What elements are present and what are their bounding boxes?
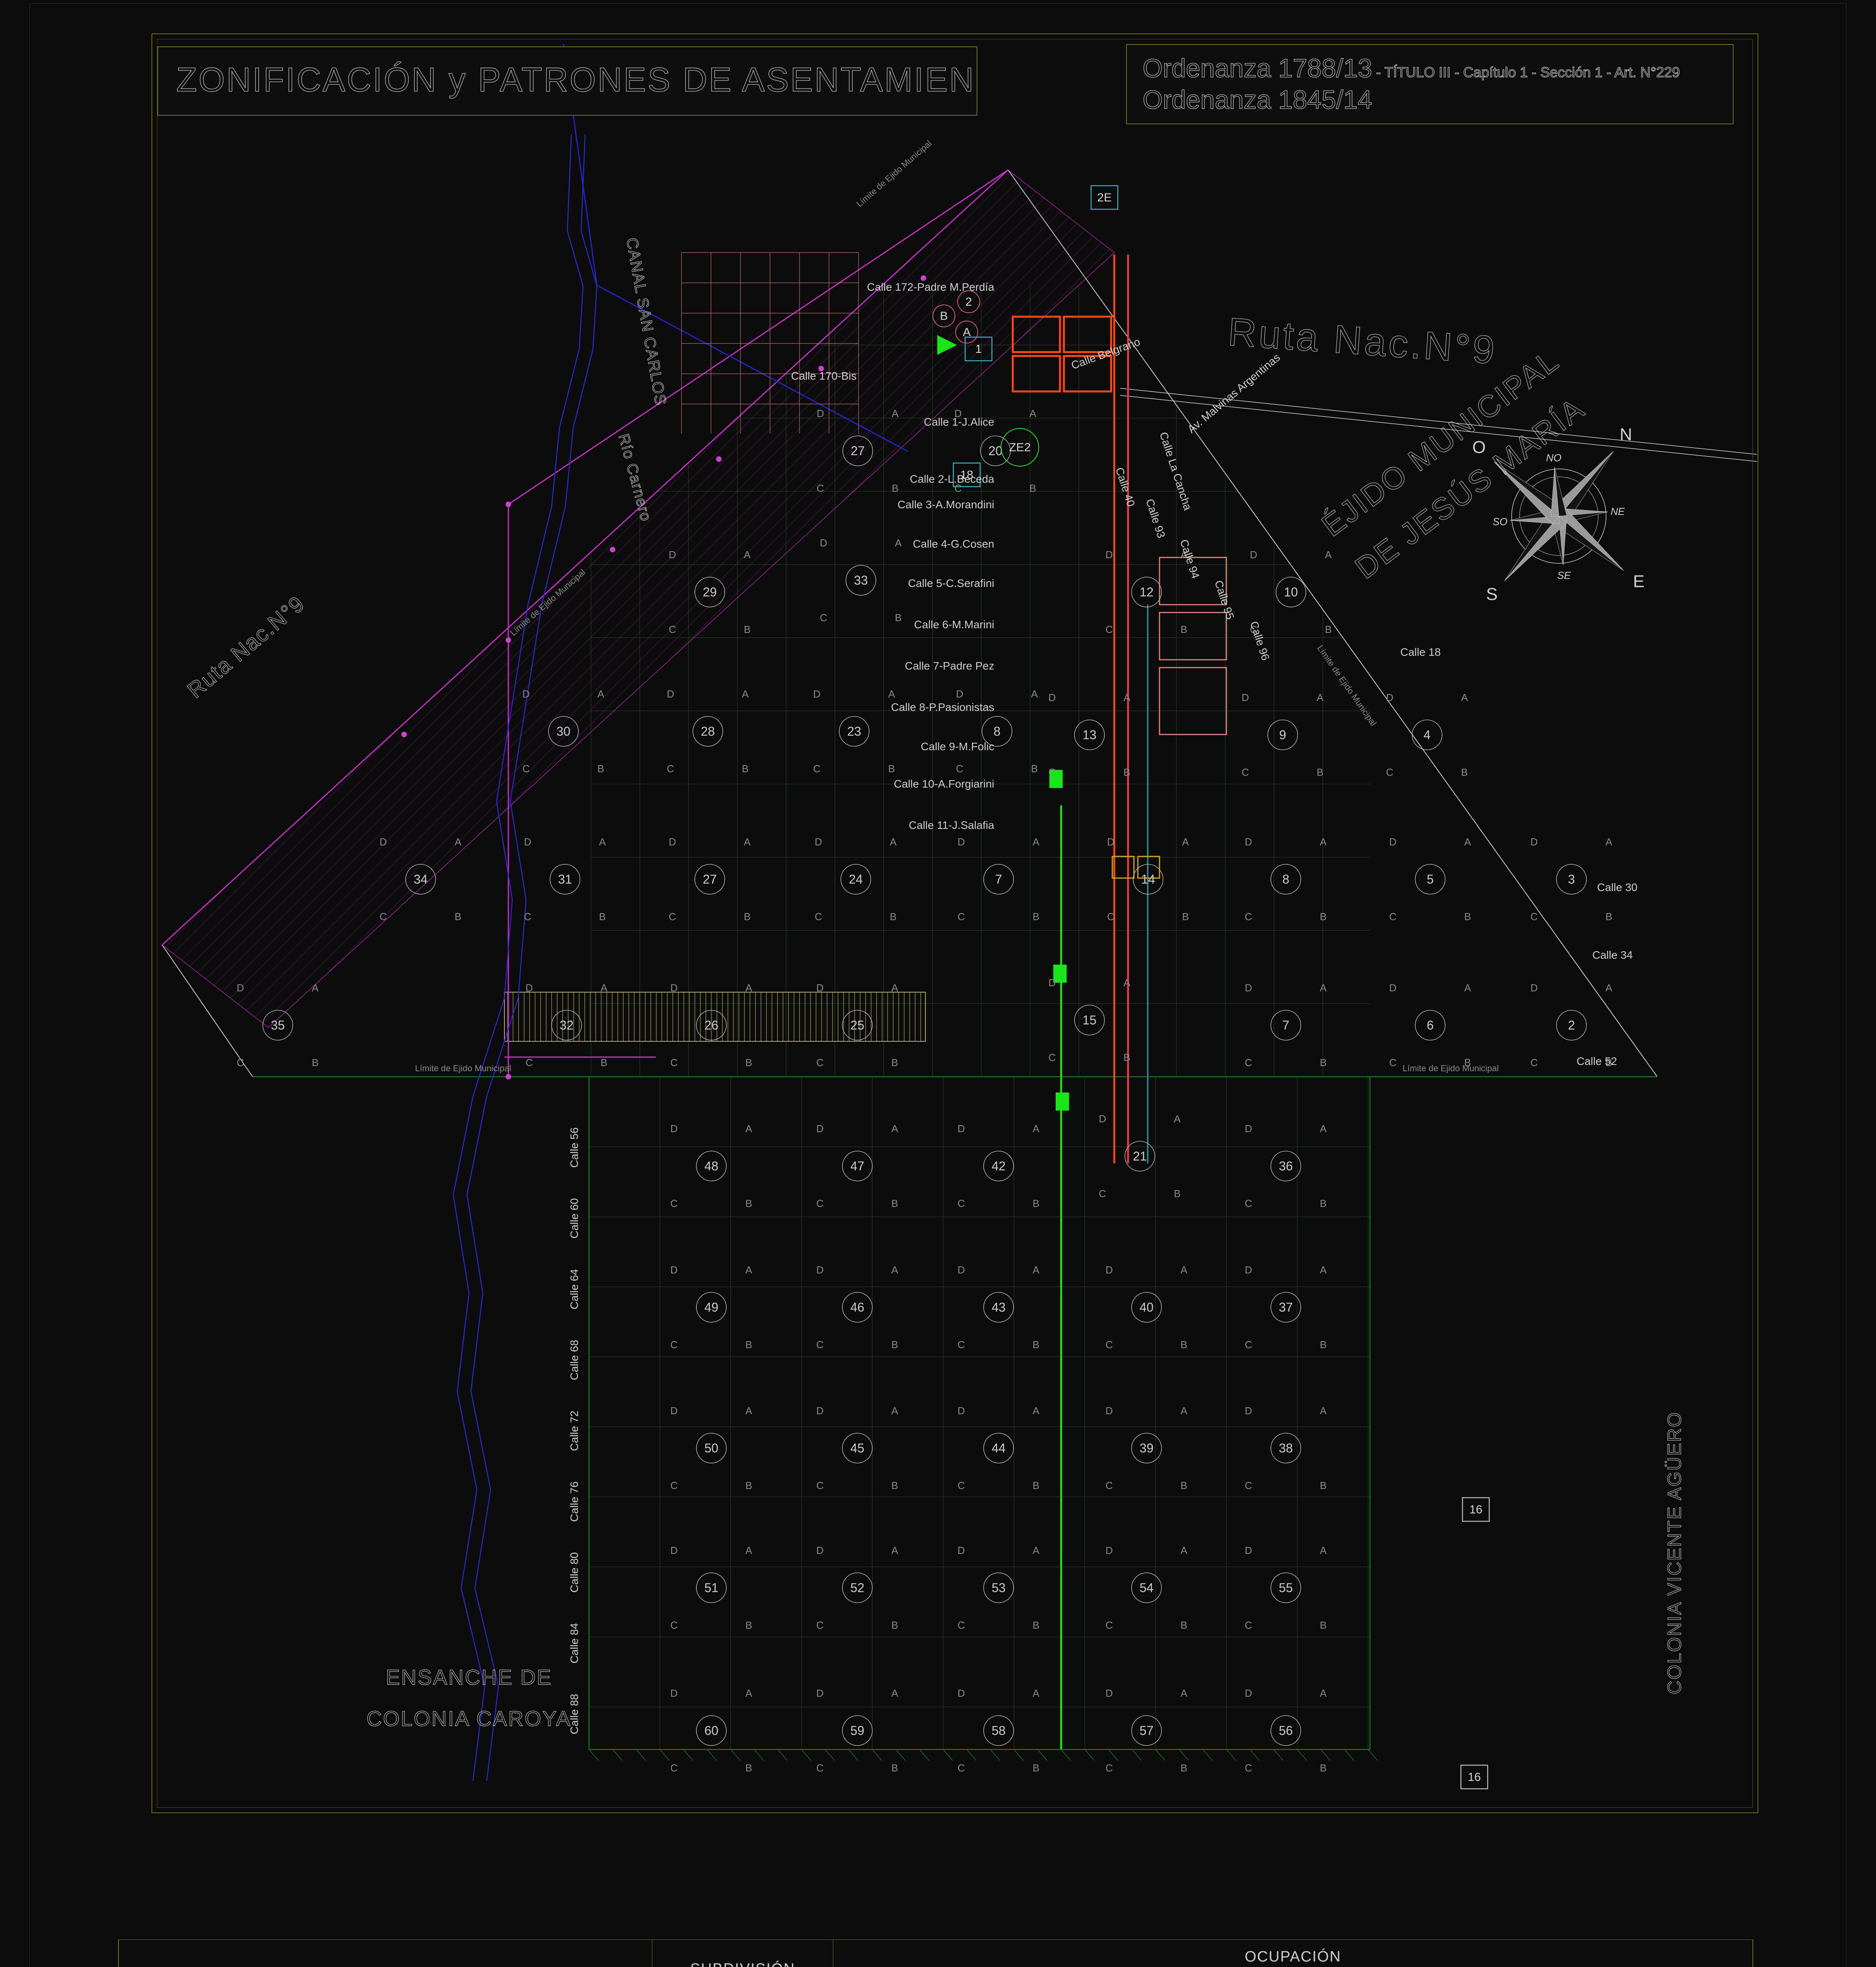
block-letter: A: [597, 688, 604, 700]
block-letter: D: [813, 688, 821, 700]
block-letter: C: [669, 911, 676, 923]
tick: [683, 1749, 693, 1760]
block-letter: C: [667, 763, 674, 775]
marker-label: 16: [1468, 1771, 1481, 1784]
block-letter: A: [742, 688, 749, 700]
block-letter: B: [745, 1480, 752, 1491]
tick: [1274, 1749, 1283, 1760]
section-number: 21: [1133, 1149, 1147, 1163]
section-number: 48: [704, 1159, 718, 1173]
block-letter: A: [891, 1123, 898, 1135]
section-number: 32: [559, 1018, 574, 1032]
street-label: Calle 7-Padre Pez: [905, 660, 994, 672]
block-letter: D: [670, 1264, 678, 1276]
street-label: Calle 76: [568, 1482, 580, 1522]
block-letter: D: [670, 1123, 678, 1135]
limit-label: Límite de Ejido Municipal: [1403, 1063, 1499, 1073]
tick: [920, 1749, 929, 1760]
block-letter: D: [958, 1264, 965, 1276]
title-block: ZONIFICACIÓN y PATRONES DE ASENTAMIENTO: [157, 46, 977, 116]
road-node: [506, 1074, 511, 1079]
street-label: Calle 3-A.Morandini: [897, 498, 994, 511]
section-number: 29: [703, 585, 717, 599]
section-number: 8: [993, 724, 1001, 738]
block-letter: D: [1245, 1264, 1252, 1276]
block-letter: C: [1245, 911, 1252, 923]
ordinance-line2: Ordenanza 1845/14: [1143, 85, 1372, 114]
block-letter: A: [1174, 1113, 1181, 1125]
block-letter: D: [816, 982, 824, 994]
block-letter: D: [669, 836, 676, 848]
section-number: 33: [854, 573, 868, 587]
zoning-table-wrap: ZONAS CONSTRUCTIVAS EN EJIDO MUNICIPAL S…: [118, 1939, 1755, 1967]
section-number: 26: [704, 1018, 718, 1032]
section-number: 39: [1139, 1441, 1154, 1455]
street-label: Calle 72: [568, 1411, 580, 1451]
block-letter: C: [956, 763, 964, 775]
block-letter: C: [524, 911, 532, 923]
block-letter: B: [744, 624, 750, 635]
zone-markers-layer: 2E11816162ABZE2: [933, 186, 1489, 1789]
block-letter: C: [380, 911, 387, 923]
section-number: 43: [992, 1300, 1006, 1314]
block-letter: B: [599, 911, 606, 923]
block-letter: B: [1320, 1619, 1326, 1631]
block-letter: C: [670, 1480, 678, 1491]
tick: [1014, 1749, 1023, 1760]
section-number: 38: [1279, 1441, 1293, 1455]
rio-carnero-line: [453, 135, 597, 1781]
block-letter: A: [1180, 1687, 1187, 1699]
section-number: 52: [850, 1581, 864, 1595]
block-letter: C: [1531, 1057, 1538, 1068]
street-label: Calle 93: [1143, 497, 1167, 539]
block-letter: B: [1464, 911, 1471, 923]
block-letter: A: [891, 1544, 898, 1556]
block-letter: B: [742, 763, 748, 775]
section-number: 30: [556, 724, 571, 738]
block-letter: B: [1325, 624, 1331, 635]
block-letter: A: [745, 982, 752, 994]
section-number: 25: [850, 1018, 864, 1032]
block-letter: A: [1032, 1123, 1040, 1135]
block-letter: C: [670, 1619, 678, 1631]
block-letter: A: [1032, 836, 1040, 848]
street-label: Calle 11-J.Salafia: [909, 819, 995, 831]
block-letter: C: [1245, 1762, 1252, 1774]
block-letter: C: [958, 1480, 965, 1491]
section-number: 10: [1284, 585, 1298, 599]
street-label: Calle 68: [568, 1340, 580, 1380]
section-number: 8: [1282, 872, 1289, 886]
page-title: ZONIFICACIÓN y PATRONES DE ASENTAMIENTO: [176, 61, 975, 99]
block-letter: A: [1320, 1123, 1327, 1135]
block-letter: D: [816, 1264, 824, 1276]
block-letter: D: [1245, 1544, 1252, 1556]
tick: [1368, 1749, 1377, 1760]
section-number: 14: [1141, 872, 1155, 886]
block-letter: D: [1106, 1405, 1113, 1417]
section-number: 36: [1279, 1159, 1293, 1173]
block-letter: A: [1320, 1264, 1327, 1276]
block-letter: C: [816, 1480, 824, 1491]
block-letter: C: [1245, 1619, 1252, 1631]
block-letter: D: [667, 688, 674, 700]
zoning-map: NNEESESSOONO 272029331210302823813943431…: [152, 34, 1758, 1812]
ordinance-line1: Ordenanza 1788/13 - TÍTULO III - Capítul…: [1143, 54, 1680, 83]
block-letter: A: [1123, 692, 1130, 703]
block-letter: D: [817, 408, 824, 419]
compass-label: SE: [1557, 569, 1571, 581]
block-letter: D: [820, 537, 827, 549]
block-letter: C: [1106, 624, 1113, 635]
compass-label: N: [1619, 425, 1632, 444]
tick: [967, 1749, 976, 1760]
block-letter: D: [1099, 1113, 1106, 1125]
tick: [613, 1749, 622, 1760]
street-label: Calle 40: [1113, 466, 1137, 508]
block-letter: D: [1245, 1687, 1252, 1699]
tick: [1085, 1749, 1094, 1760]
compass-label: S: [1486, 585, 1497, 604]
block-letter: C: [1245, 1057, 1252, 1068]
marker-label: 2E: [1097, 191, 1112, 204]
section-number: 50: [704, 1441, 718, 1455]
street-label: Calle 18: [1400, 646, 1441, 658]
street-label: Calle 170-Bis: [791, 370, 857, 382]
block-letter: D: [816, 1544, 824, 1556]
block-letter: A: [1123, 977, 1130, 989]
tick: [943, 1749, 953, 1760]
block-letter: B: [1320, 1339, 1326, 1351]
street-label: Calle La Cancha: [1157, 430, 1194, 512]
tick: [1344, 1749, 1354, 1760]
ordinance-block: Ordenanza 1788/13 - TÍTULO III - Capítul…: [1126, 44, 1734, 124]
street-label: Calle Belgrano: [1069, 336, 1141, 372]
tick: [660, 1749, 669, 1760]
block-letter: A: [312, 982, 319, 994]
road-node: [921, 275, 926, 281]
block-letter: A: [1461, 692, 1468, 703]
street-label: Calle 10-A.Forgiarini: [894, 778, 994, 790]
section-number: 28: [701, 724, 715, 738]
block-letter: A: [890, 836, 897, 848]
street-label: Calle 96: [1248, 620, 1272, 662]
section-number: 13: [1082, 728, 1097, 742]
block-letter: C: [670, 1339, 678, 1351]
block-letter: D: [1106, 1264, 1113, 1276]
street-label: Calle 1-J.Alice: [924, 416, 994, 428]
block-letter: C: [1386, 766, 1394, 778]
block-letter: B: [888, 763, 895, 775]
block-letter: B: [1461, 766, 1468, 778]
block-letter: A: [745, 1264, 752, 1276]
block-letter: C: [1099, 1188, 1106, 1199]
block-letter: C: [816, 1339, 824, 1351]
block-letter: D: [1107, 836, 1115, 848]
block-letter: B: [745, 1619, 752, 1631]
section-number: 31: [558, 872, 572, 886]
block-letter: B: [1032, 1762, 1039, 1774]
block-letter: A: [1032, 1264, 1040, 1276]
block-letter: C: [1245, 1480, 1252, 1491]
block-letter: D: [670, 982, 678, 994]
limit-label: Límite de Ejido Municipal: [1315, 643, 1379, 728]
road-node: [401, 732, 407, 737]
block-letter: A: [600, 982, 607, 994]
road-node: [610, 547, 615, 552]
map-big-label: Ruta Nac.N°9: [183, 591, 309, 703]
block-letter: A: [891, 1405, 898, 1417]
block-letter: D: [816, 1405, 824, 1417]
block-letter: C: [813, 763, 821, 775]
block-letter: A: [891, 1687, 898, 1699]
big-labels-layer: Ruta Nac.N°9Ruta Nac.N°9ÉJIDO MUNICIPALD…: [183, 236, 1685, 1731]
block-letter: D: [1531, 982, 1538, 994]
block-letter: C: [817, 482, 824, 494]
block-letter: D: [1389, 836, 1397, 848]
block-letter: B: [1180, 1619, 1187, 1631]
block-letter: D: [1049, 692, 1056, 703]
block-letter: A: [745, 1544, 752, 1556]
block-letter: B: [891, 1480, 898, 1491]
block-letter: C: [1049, 1052, 1056, 1063]
zoning-cad-sheet: { "title_block": { "title": "ZONIFICACIÓ…: [0, 0, 1876, 1967]
block-letter: A: [1325, 549, 1332, 561]
marker-label: A: [963, 326, 971, 339]
block-letter: A: [1032, 1687, 1040, 1699]
block-letter: C: [958, 1339, 965, 1351]
block-letter: B: [1032, 1198, 1039, 1209]
street-label: Calle 95: [1212, 579, 1236, 621]
block-letter: B: [891, 1619, 898, 1631]
block-letter: D: [1242, 692, 1249, 703]
section-number: 44: [992, 1441, 1006, 1455]
block-letter: D: [670, 1687, 678, 1699]
block-letter: B: [1032, 1339, 1039, 1351]
section-number: 56: [1279, 1723, 1293, 1738]
block-letter: A: [1605, 836, 1612, 848]
block-letter: C: [958, 1619, 965, 1631]
block-letter: B: [891, 1339, 898, 1351]
block-letter: C: [1531, 911, 1538, 923]
block-letter: A: [1182, 836, 1189, 848]
boundary-ticks: [589, 1749, 1377, 1760]
limite-lines: [253, 1077, 1657, 1749]
tick: [1179, 1749, 1189, 1760]
zones-title: ZONAS CONSTRUCTIVAS EN EJIDO MUNICIPAL: [118, 1940, 652, 1967]
block-letter: C: [1106, 1339, 1113, 1351]
block-letter: B: [1317, 766, 1323, 778]
compass-label: NO: [1546, 452, 1561, 464]
tick: [707, 1749, 716, 1760]
block-letter: C: [816, 1198, 824, 1209]
block-letter: B: [1180, 1762, 1187, 1774]
street-label: Av. Malvinas Argentinas: [1185, 351, 1282, 435]
block-letter: C: [670, 1762, 678, 1774]
block-letter: A: [1464, 982, 1471, 994]
map-big-label: CANAL SAN CARLOS: [623, 236, 669, 407]
block-letter: A: [1317, 692, 1324, 703]
section-number: 60: [704, 1723, 718, 1738]
tick: [778, 1749, 787, 1760]
street-label: Calle 80: [568, 1552, 580, 1593]
block-letter: D: [1245, 1405, 1252, 1417]
block-letter: A: [888, 688, 895, 700]
tick: [990, 1749, 1000, 1760]
block-letter: C: [523, 763, 530, 775]
block-letter: A: [745, 1405, 752, 1417]
corridor-calle-band: [504, 992, 925, 1041]
block-letter: C: [1242, 766, 1249, 778]
block-letter: A: [745, 1687, 752, 1699]
block-letter: B: [1029, 482, 1036, 494]
block-letter: C: [1245, 1198, 1252, 1209]
section-number: 47: [850, 1159, 864, 1173]
block-letter: A: [892, 408, 899, 419]
block-letter: D: [958, 1687, 965, 1699]
block-letter: B: [1605, 911, 1612, 923]
block-letter: A: [744, 549, 751, 561]
block-letter: B: [1180, 1480, 1187, 1491]
block-letter: A: [454, 836, 462, 848]
map-big-label: Río Carnero: [615, 432, 654, 523]
block-letter: B: [1320, 1198, 1326, 1209]
tick: [801, 1749, 811, 1760]
block-letter: A: [1320, 836, 1327, 848]
ocupacion-header: OCUPACIÓN: [833, 1940, 1753, 1967]
section-number: 59: [850, 1723, 864, 1738]
section-number: 57: [1139, 1723, 1154, 1738]
marker-label: 2: [966, 295, 972, 308]
section-number: 5: [1427, 872, 1434, 886]
block-letter: D: [1389, 982, 1397, 994]
block-letter: B: [454, 911, 461, 923]
street-label: Calle 64: [568, 1269, 580, 1310]
section-number: 53: [992, 1581, 1006, 1595]
section-number: 6: [1427, 1018, 1434, 1032]
block-letter: A: [1320, 1544, 1327, 1556]
block-letter: D: [1106, 1687, 1113, 1699]
block-letter: B: [745, 1057, 752, 1068]
block-letter: C: [237, 1057, 244, 1068]
street-label: Calle 6-M.Marini: [914, 618, 994, 631]
section-number: 27: [851, 444, 865, 458]
tick: [1321, 1749, 1330, 1760]
block-letter: C: [816, 1619, 824, 1631]
block-letter: B: [1032, 911, 1039, 923]
compass-spike: [1559, 508, 1624, 570]
compass-label: E: [1633, 572, 1644, 591]
limit-label: Límite de Ejido Municipal: [855, 138, 934, 209]
tick: [589, 1749, 598, 1760]
block-letter: B: [744, 911, 750, 923]
tick: [1038, 1749, 1047, 1760]
block-letter: C: [670, 1057, 678, 1068]
block-letter: B: [1320, 1057, 1326, 1068]
road-node: [506, 502, 511, 507]
block-letter: D: [1106, 1544, 1113, 1556]
street-label: Calle 5-C.Serafini: [908, 577, 994, 589]
limit-label: Límite de Ejido Municipal: [415, 1063, 511, 1073]
section-number: 37: [1279, 1300, 1293, 1314]
block-letter: B: [891, 1057, 898, 1068]
road-node: [716, 456, 722, 462]
block-letter: A: [1032, 1544, 1040, 1556]
tick: [1297, 1749, 1307, 1760]
block-letter: A: [745, 1123, 752, 1135]
section-number: 9: [1279, 728, 1286, 742]
block-letter: B: [1123, 766, 1130, 778]
compass-label: SO: [1493, 516, 1508, 528]
block-letter: A: [1180, 1405, 1187, 1417]
section-number: 7: [1282, 1018, 1289, 1032]
tick: [825, 1749, 835, 1760]
block-letter: B: [745, 1198, 752, 1209]
section-number: 42: [992, 1159, 1006, 1173]
block-letter: A: [1320, 982, 1327, 994]
block-letter: B: [1182, 911, 1189, 923]
section-number: 40: [1139, 1300, 1154, 1314]
tick: [896, 1749, 905, 1760]
street-label: Calle 172-Padre M.Perdía: [867, 281, 994, 293]
block-letter: A: [1180, 1264, 1187, 1276]
block-letter: A: [1605, 982, 1612, 994]
block-letter: C: [670, 1198, 678, 1209]
marker-label: B: [940, 310, 948, 323]
block-letter: C: [1245, 1339, 1252, 1351]
block-letter: B: [745, 1762, 752, 1774]
tick: [731, 1749, 740, 1760]
block-letter: D: [523, 688, 530, 700]
block-letter: A: [599, 836, 606, 848]
block-letter: C: [816, 1057, 824, 1068]
block-letter: C: [1389, 1057, 1397, 1068]
block-letter: D: [1531, 836, 1538, 848]
section-number: 54: [1139, 1581, 1154, 1595]
block-letter: A: [891, 1264, 898, 1276]
section-number: 23: [847, 724, 861, 738]
lower-block-grid: [589, 1077, 1370, 1749]
tick: [754, 1749, 764, 1760]
block-letter: A: [1464, 836, 1471, 848]
section-number: 20: [988, 444, 1003, 458]
block-letters-layer: DACBDACBDACBDACBDACBDACBDACBDACBDACBDACB…: [237, 408, 1613, 1774]
subdivision-header: SUBDIVISIÓN: [652, 1940, 833, 1967]
block-letter: B: [1174, 1188, 1180, 1199]
street-label: Calle 84: [568, 1623, 580, 1664]
block-letter: D: [380, 836, 387, 848]
block-letter: D: [1049, 977, 1056, 989]
section-number: 34: [414, 872, 428, 886]
block-letter: B: [892, 482, 898, 494]
section-number: 45: [850, 1441, 864, 1455]
street-label: Calle 9-M.Folic: [921, 740, 994, 753]
block-letter: C: [958, 1762, 965, 1774]
block-letter: C: [958, 911, 965, 923]
tick: [1132, 1749, 1141, 1760]
block-letter: C: [1106, 1480, 1113, 1491]
section-number: 3: [1568, 872, 1575, 886]
block-letter: A: [1029, 408, 1036, 419]
block-letter: D: [1106, 549, 1113, 561]
section-number: 58: [992, 1723, 1006, 1738]
tick: [1250, 1749, 1259, 1760]
block-letter: B: [1032, 1619, 1039, 1631]
tick: [849, 1749, 858, 1760]
map-frame: NNEESESSOONO 272029331210302823813943431…: [151, 33, 1758, 1813]
street-label: Calle 4-G.Cosen: [913, 538, 994, 550]
